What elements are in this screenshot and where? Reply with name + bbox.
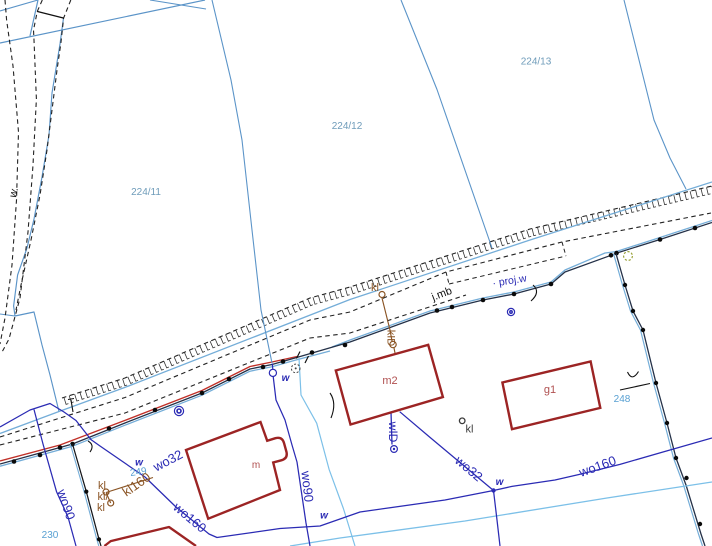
svg-text:m: m [252, 460, 260, 471]
svg-text:w: w [135, 458, 144, 469]
svg-text:224/11: 224/11 [131, 187, 161, 198]
svg-text:kl: kl [466, 424, 474, 436]
svg-text:224/12: 224/12 [332, 121, 363, 132]
svg-text:m2: m2 [382, 375, 397, 387]
svg-text:230: 230 [42, 530, 59, 541]
svg-text:w: w [282, 373, 291, 384]
svg-text:wID: wID [386, 421, 400, 443]
svg-text:248: 248 [614, 394, 631, 405]
svg-text:w: w [496, 477, 505, 488]
svg-text:g1: g1 [544, 384, 556, 396]
svg-text:kl: kl [371, 282, 379, 294]
svg-text:w: w [320, 511, 329, 522]
svg-text:kl: kl [97, 502, 105, 514]
svg-text:224/13: 224/13 [521, 57, 552, 68]
svg-text:kID: kID [385, 330, 397, 347]
